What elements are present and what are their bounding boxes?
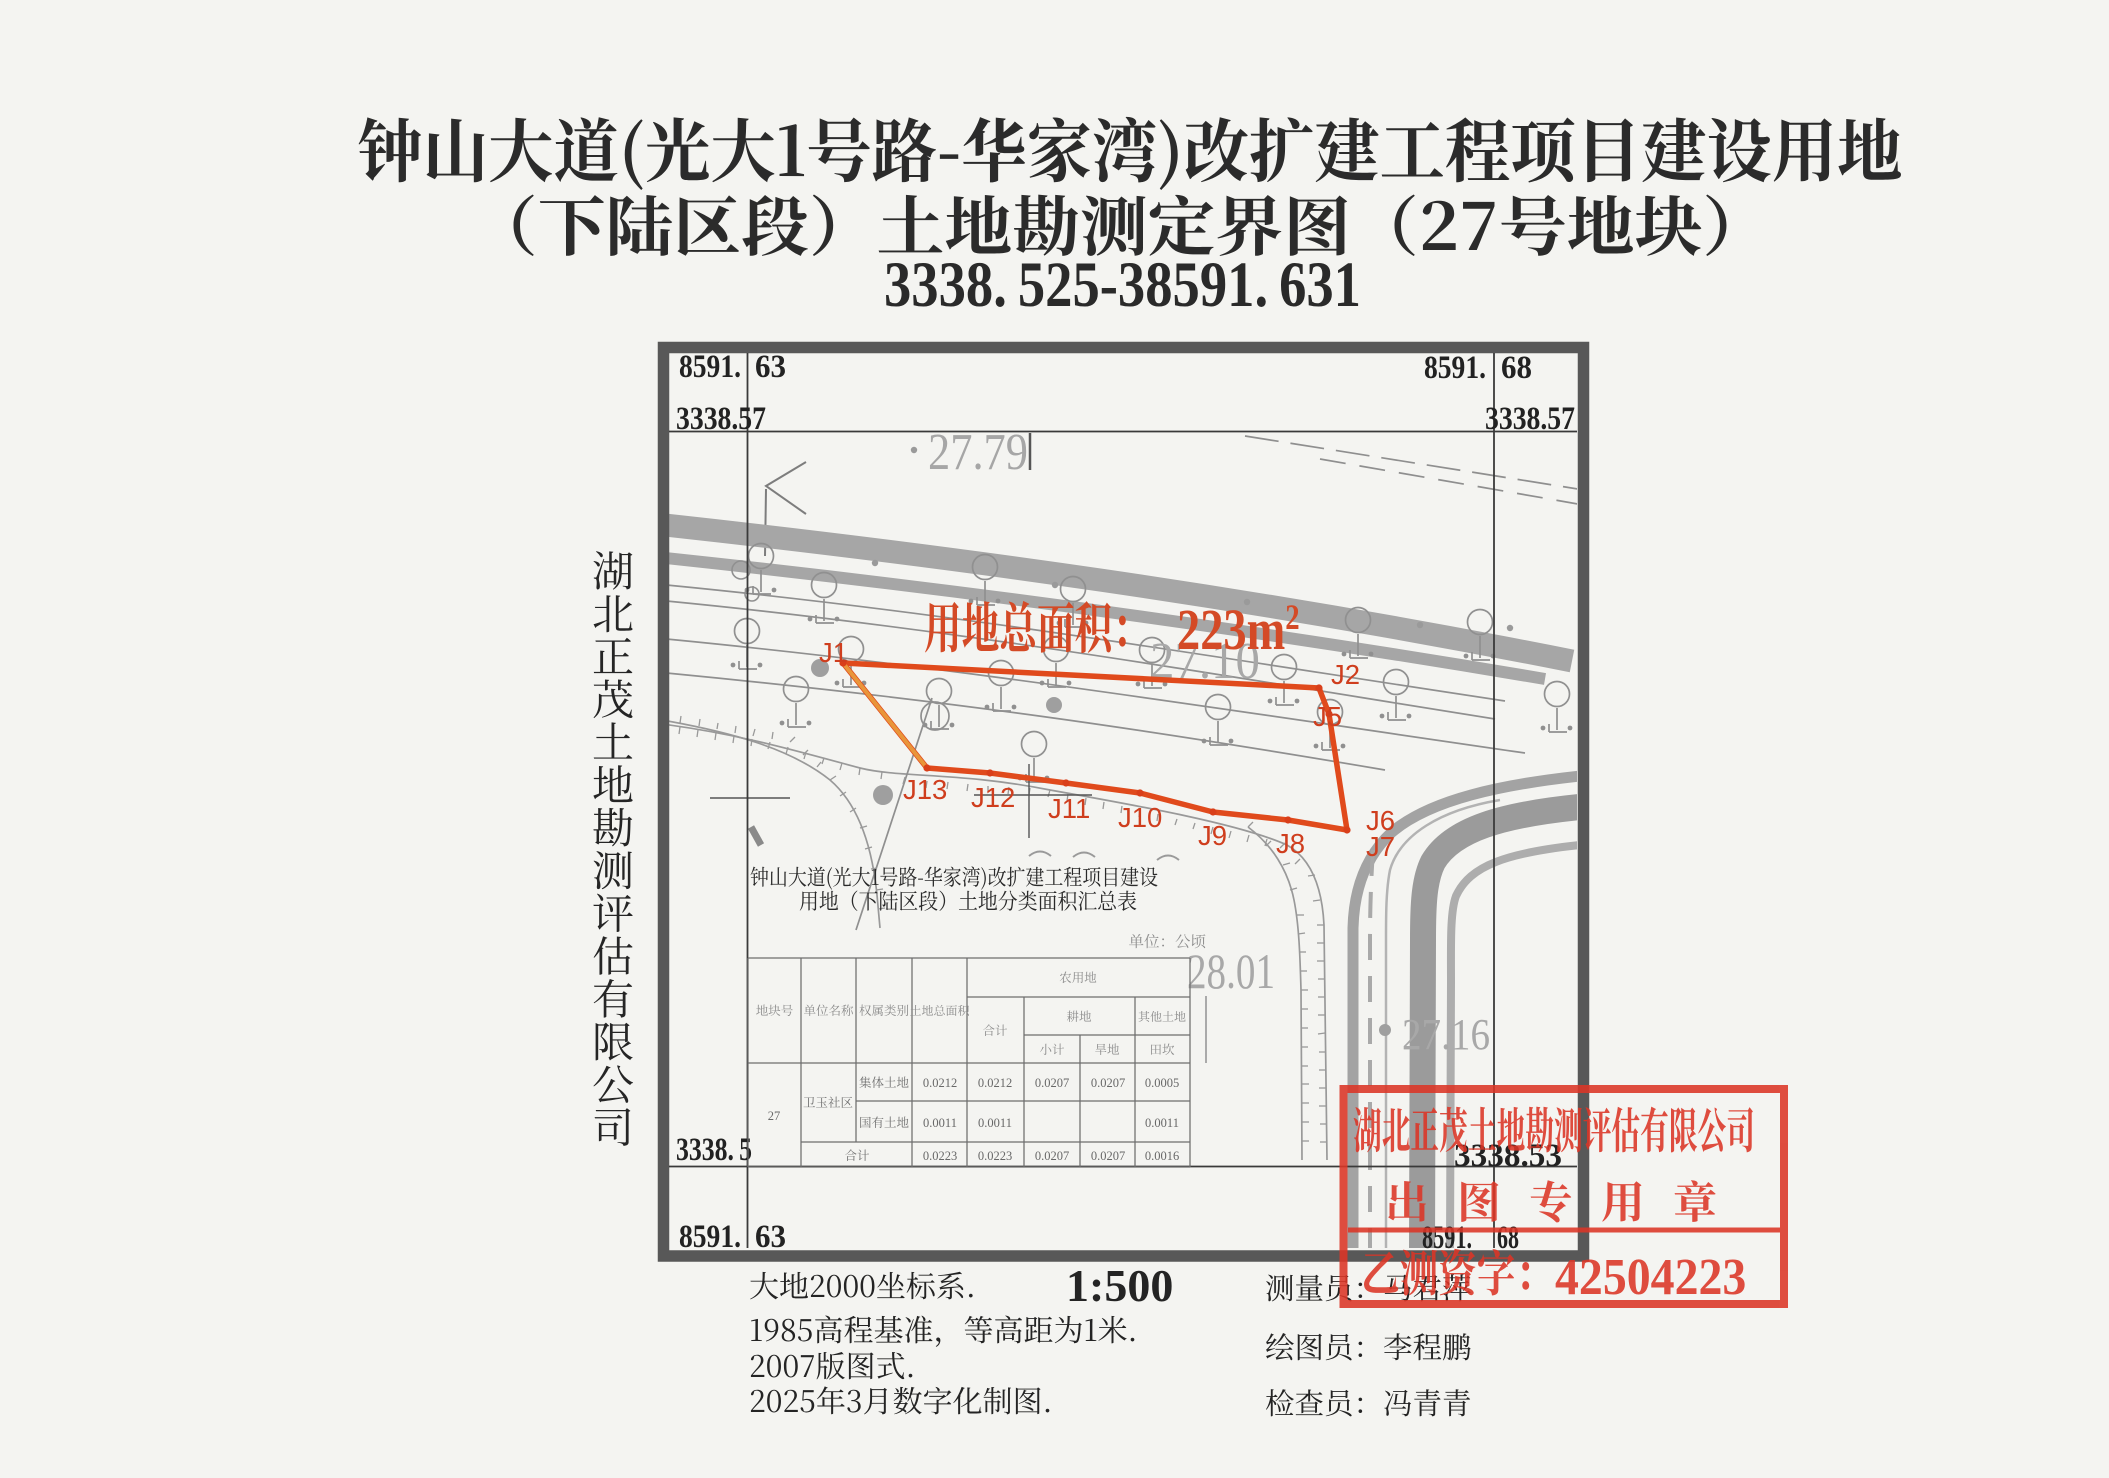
svg-text:0.0212: 0.0212 [923,1076,957,1090]
svg-text:27: 27 [768,1109,781,1123]
svg-text:J5: J5 [1313,701,1342,732]
svg-text:J10: J10 [1118,802,1162,833]
svg-text:1:500: 1:500 [1066,1260,1173,1311]
svg-text:0.0011: 0.0011 [978,1116,1012,1130]
svg-text:J11: J11 [1048,793,1090,824]
svg-text:68: 68 [1501,350,1532,386]
svg-text:J9: J9 [1198,820,1227,851]
svg-text:J2: J2 [1331,659,1360,690]
svg-text:8591.: 8591. [679,1219,741,1255]
svg-text:223m2: 223m2 [1177,598,1300,662]
svg-text:J8: J8 [1276,828,1305,859]
svg-text:0.0207: 0.0207 [1035,1076,1069,1090]
svg-text:63: 63 [755,349,786,385]
svg-text:8591.: 8591. [679,349,741,385]
svg-text:3338.57: 3338.57 [676,401,766,437]
svg-text:27.79: 27.79 [928,424,1028,481]
svg-text:J7: J7 [1366,831,1395,862]
svg-text:42504223: 42504223 [1555,1247,1746,1305]
svg-text:3338. 525-38591. 631: 3338. 525-38591. 631 [884,248,1361,321]
svg-text:J12: J12 [971,782,1015,813]
svg-text:68: 68 [1497,1220,1519,1256]
svg-text:J1: J1 [819,637,848,668]
svg-text:0.0207: 0.0207 [1091,1076,1125,1090]
svg-text:0.0011: 0.0011 [1145,1116,1179,1130]
svg-text:0.0011: 0.0011 [923,1116,957,1130]
svg-text:0.0207: 0.0207 [1091,1149,1125,1163]
svg-text:3338. 5: 3338. 5 [676,1132,752,1168]
svg-text:8591.: 8591. [1424,350,1486,386]
svg-text:0.0005: 0.0005 [1145,1076,1179,1090]
svg-text:28.01: 28.01 [1187,943,1275,999]
svg-text:63: 63 [755,1219,786,1255]
svg-text:8591.: 8591. [1422,1220,1472,1256]
svg-text:0.0223: 0.0223 [978,1149,1012,1163]
svg-text:27.16: 27.16 [1402,1010,1490,1059]
svg-text:0.0207: 0.0207 [1035,1149,1069,1163]
svg-text:3338.57: 3338.57 [1485,401,1575,437]
svg-text:0.0016: 0.0016 [1145,1149,1179,1163]
svg-text:0.0212: 0.0212 [978,1076,1012,1090]
svg-text:J13: J13 [903,774,947,805]
svg-text:0.0223: 0.0223 [923,1149,957,1163]
